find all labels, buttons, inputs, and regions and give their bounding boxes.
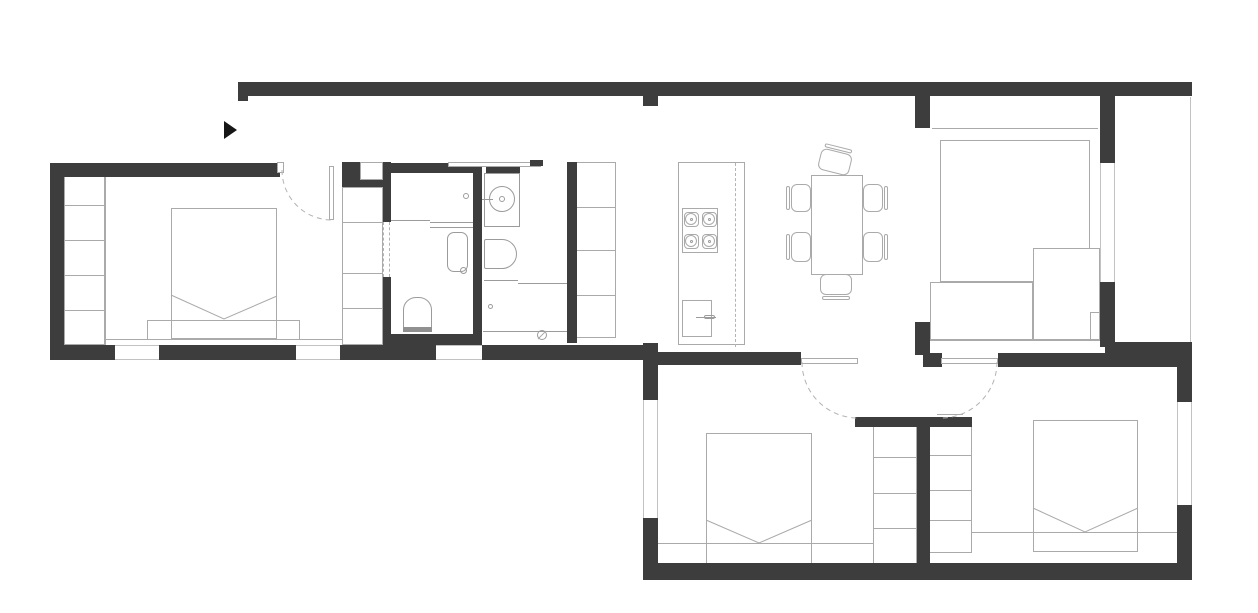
top-wall <box>238 82 1192 96</box>
burner-dot-3 <box>690 240 693 243</box>
south-wall-seg-2 <box>159 345 296 360</box>
dining-chair-left-2 <box>791 232 811 262</box>
br-bedroom-door-arc <box>941 362 997 418</box>
dining-chair-bottom <box>820 274 852 295</box>
pocket-door-dashed-a <box>383 222 384 277</box>
left-bedroom-wall-line <box>105 339 343 340</box>
bath1-basin-tap <box>460 267 467 274</box>
dining-chair-left-1-back <box>786 186 790 210</box>
left-bedroom-door-arc <box>282 170 332 220</box>
vestibule-stub-wall <box>855 417 972 427</box>
left-bedroom-wardrobe-shelf-1 <box>64 205 105 206</box>
left-bedroom-wardrobe-front <box>105 175 106 345</box>
bath2-shower-edge-b <box>518 283 567 284</box>
south-wall-seg-4 <box>482 345 658 360</box>
top-right-bedroom-bench <box>930 282 1033 340</box>
living-pillar-upper <box>915 96 930 128</box>
bath1-basin <box>447 232 468 272</box>
entry-arrow <box>224 121 237 139</box>
bath1-shower-drain <box>463 193 469 199</box>
left-wall <box>50 163 64 360</box>
tr-right-wall-lower <box>1100 282 1115 347</box>
br-closet-shelf-2 <box>928 490 972 491</box>
top-right-bedroom-headboard-line <box>932 128 1098 129</box>
top-right-bedroom-floor-line <box>930 340 1100 341</box>
bm-closet-shelf-1 <box>873 457 917 458</box>
island-overhang-dashed <box>735 163 736 347</box>
dining-chair-top-back <box>824 143 852 154</box>
left-bedroom-bench <box>147 320 300 340</box>
bath1-shower-step-b <box>430 227 473 228</box>
bm-closet-shelf-2 <box>873 493 917 494</box>
south-wall-seg-1 <box>50 345 115 360</box>
floor-drain-symbol <box>537 330 547 340</box>
br-closet-shelf-3 <box>928 520 972 521</box>
dining-chair-right-1-back <box>884 186 888 210</box>
bm-bedroom-door-arc <box>802 362 858 418</box>
bath2-shower-edge-a <box>484 280 518 281</box>
br-closet-shelf-1 <box>928 455 972 456</box>
bottom-middle-bedroom-closet <box>873 425 917 567</box>
south-window-3 <box>436 345 482 360</box>
bm-left-wall-lower <box>643 518 658 577</box>
left-bedroom-door-jamb-mark <box>277 162 284 173</box>
top-wall-left-cap <box>238 82 248 101</box>
burner-dot-4 <box>708 240 711 243</box>
left-bedroom-wardrobe-shelf-2 <box>64 240 105 241</box>
dining-chair-bottom-back <box>822 296 850 300</box>
floor-plan <box>0 0 1258 613</box>
bath2-sliding-door-leaf <box>486 167 520 173</box>
left-bedroom-wardrobe-shelf-3 <box>64 275 105 276</box>
dining-chair-right-1 <box>863 184 883 212</box>
bm-bedroom-window <box>643 400 658 518</box>
terrace-edge-line <box>1190 97 1191 342</box>
dining-chair-left-2-back <box>786 234 790 260</box>
bath1-toilet <box>403 297 432 330</box>
corridor-closet-shelf-1 <box>342 222 383 223</box>
br-bedroom-window <box>1177 402 1192 505</box>
bath1-toilet-base <box>403 327 432 332</box>
hall-closet-shelf-1 <box>576 207 616 208</box>
burner-dot-1 <box>690 218 693 221</box>
bath-floor-slab <box>385 334 482 345</box>
pocket-door-dashed-b <box>389 222 390 277</box>
vestibule-east-wall <box>923 353 942 367</box>
dining-chair-right-2-back <box>884 234 888 260</box>
bath-divider-wall <box>473 163 482 343</box>
vestibule-wall-top-line <box>937 414 963 415</box>
south-wall-seg-3 <box>340 345 436 360</box>
left-bedroom-door-leaf <box>329 166 334 220</box>
bedroom-divider-wall <box>917 425 930 567</box>
bm-top-wall <box>643 352 801 365</box>
tr-right-wall-upper <box>1100 96 1115 163</box>
top-right-bedroom-nightstand <box>1090 312 1100 340</box>
burner-dot-2 <box>708 218 711 221</box>
br-top-wall <box>998 353 1180 367</box>
kitchen-faucet-handle <box>704 315 715 319</box>
bottom-right-bedroom-blanket-line <box>972 532 1177 533</box>
dining-chair-right-2 <box>863 232 883 262</box>
corridor-closet-shelf-2 <box>342 273 383 274</box>
bath1-shower-step-a <box>430 222 473 223</box>
hall-closet-shelf-3 <box>576 295 616 296</box>
bath2-right-wall <box>567 162 577 343</box>
south-window-2 <box>296 345 340 360</box>
bottom-middle-bedroom-bed <box>706 433 812 564</box>
dining-chair-top <box>817 147 853 176</box>
left-bedroom-top-wall <box>50 163 280 177</box>
dining-chair-left-1 <box>791 184 811 212</box>
bm-bedroom-door-leaf <box>801 358 858 364</box>
br-bedroom-door-leaf <box>941 358 998 364</box>
kitchen-top-stub-wall <box>643 96 658 106</box>
corridor-cabinet <box>360 162 383 180</box>
bath2-tap-spout <box>481 199 493 200</box>
bath2-sliding-door-stop <box>530 160 543 166</box>
bath1-shower-edge <box>390 220 430 221</box>
left-bedroom-wardrobe-shelf-4 <box>64 310 105 311</box>
bath2-shower-drain <box>488 304 493 309</box>
corridor-closet <box>342 187 383 345</box>
dining-table <box>811 175 863 275</box>
bath2-toilet <box>484 239 517 269</box>
bm-closet-shelf-3 <box>873 528 917 529</box>
bottom-right-bedroom-closet <box>928 423 972 553</box>
south-window-1 <box>115 345 159 360</box>
bath2-tap-dot <box>499 196 505 202</box>
tr-bedroom-window <box>1100 163 1115 282</box>
living-pillar-lower <box>915 322 930 355</box>
left-bedroom-wardrobe <box>64 175 105 345</box>
bottom-middle-bedroom-blanket-line <box>658 543 873 544</box>
hall-closet-shelf-2 <box>576 250 616 251</box>
corridor-closet-shelf-3 <box>342 308 383 309</box>
bath2-floor-line <box>483 331 567 332</box>
